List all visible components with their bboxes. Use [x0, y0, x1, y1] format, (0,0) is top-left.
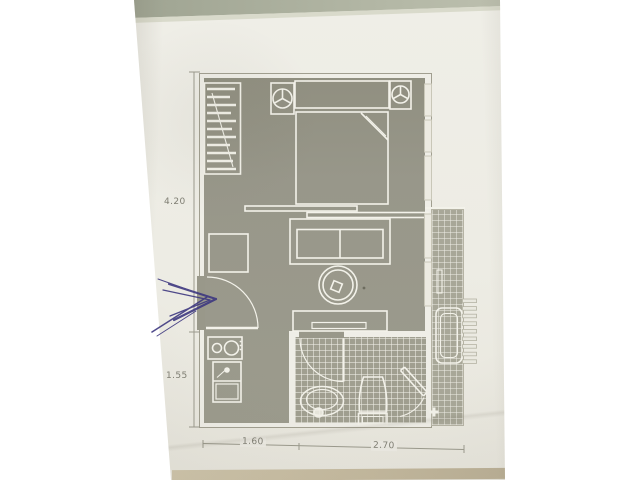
dim-height-lower: 1.55 — [166, 371, 188, 381]
room-balcony — [431, 209, 464, 426]
room-bathroom — [295, 337, 426, 423]
dim-width-left: 1.60 — [240, 437, 266, 447]
dim-height-upper: 4.20 — [164, 197, 186, 207]
photo-of-floor-plan: 4.20 1.55 1.60 2.70 — [0, 0, 640, 480]
dim-width-right: 2.70 — [371, 441, 397, 451]
bath-door-opening — [299, 330, 344, 338]
table-surface-bottom — [172, 468, 506, 480]
entry-door-opening — [197, 276, 205, 330]
